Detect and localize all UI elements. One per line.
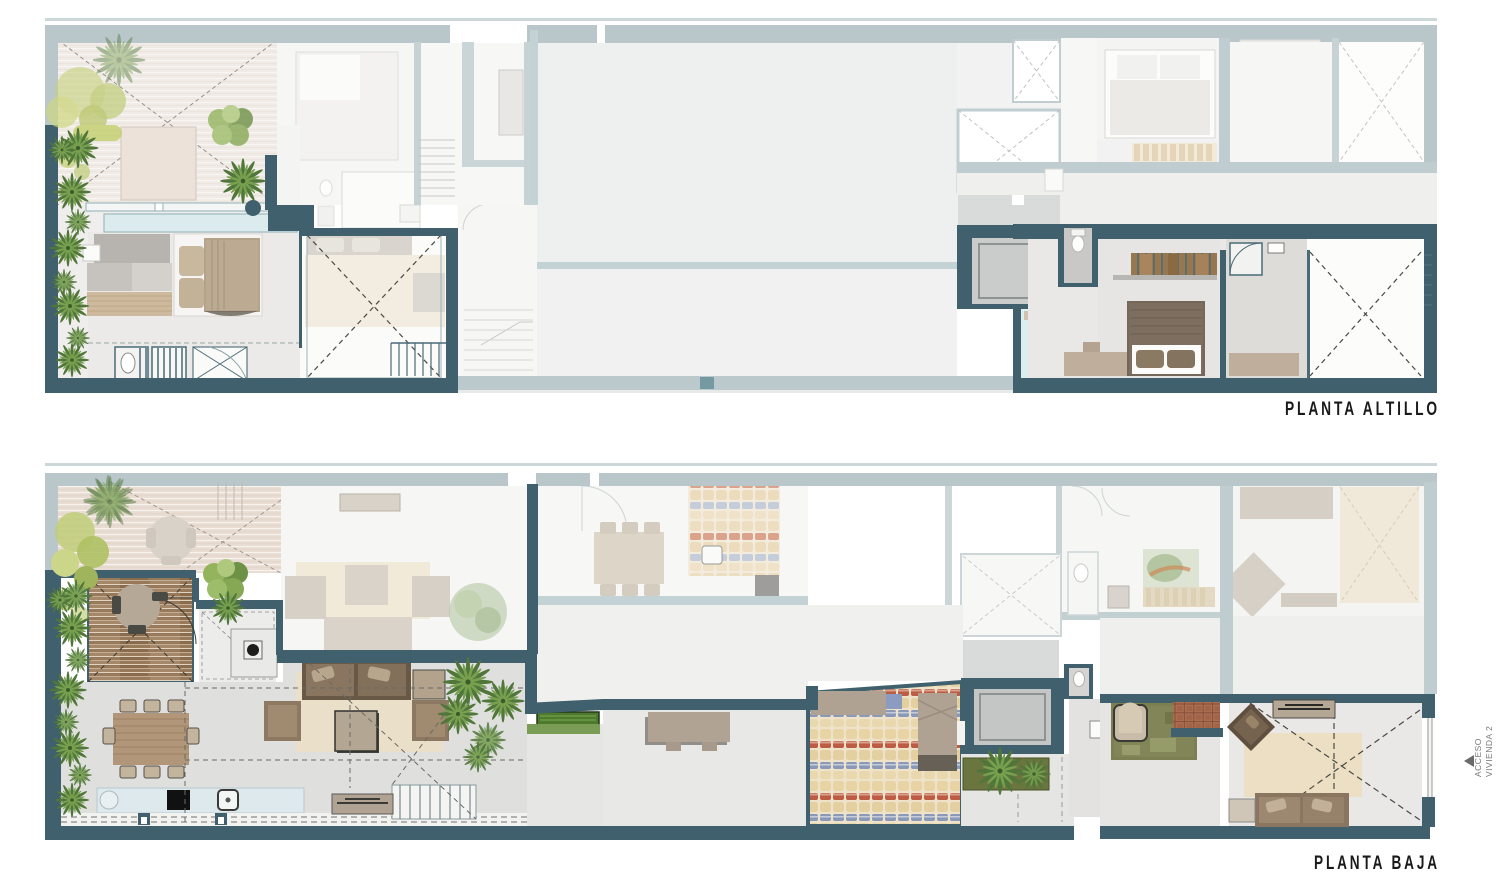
svg-text:PLANTA BAJA: PLANTA BAJA <box>1314 853 1440 873</box>
svg-text:PLANTA ALTILLO: PLANTA ALTILLO <box>1285 399 1440 420</box>
svg-text:VIVIENDA 2: VIVIENDA 2 <box>1484 726 1494 777</box>
svg-text:ACCESO: ACCESO <box>1473 738 1483 777</box>
